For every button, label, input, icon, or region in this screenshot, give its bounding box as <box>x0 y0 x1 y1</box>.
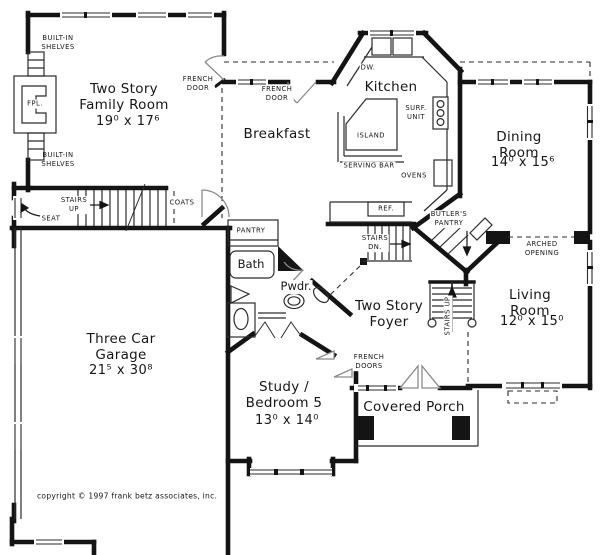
study-dims: 13⁰ x 14⁰ <box>255 413 319 429</box>
ref-counter <box>330 202 412 222</box>
cased-opening-break <box>255 322 301 338</box>
garage-dims: 21⁵ x 30⁸ <box>89 363 153 379</box>
arched-opening-label: ARCHED OPENING <box>513 240 571 258</box>
stairs-up-foyer-label: STAIRS UP <box>444 296 453 337</box>
floor-plan: BUILT-IN SHELVES FPL. BUILT-IN SHELVES T… <box>0 0 600 555</box>
living-room-dims: 12⁰ x 15⁰ <box>500 314 564 330</box>
stairs-up-hall-treads <box>78 184 158 231</box>
ovens-icon <box>434 160 452 186</box>
island-counter <box>346 99 397 150</box>
porch-column <box>356 416 374 440</box>
front-door-icon <box>400 366 440 388</box>
surface-unit-label: SURF. UNIT <box>404 104 427 122</box>
dishwasher-label: DW. <box>360 64 377 73</box>
french-doors-study-icon <box>316 351 352 377</box>
family-room-label: Two Story Family Room <box>79 81 168 113</box>
serving-bar-label: SERVING BAR <box>342 162 395 171</box>
french-doors-study-label: FRENCH DOORS <box>353 353 386 371</box>
kitchen-sink-icon <box>393 38 412 55</box>
coats-label: COATS <box>169 199 196 208</box>
study-label: Study / Bedroom 5 <box>246 379 323 411</box>
copyright-text: copyright © 1997 frank betz associates, … <box>37 491 217 500</box>
pantry-label: PANTRY <box>236 227 267 236</box>
foyer-label: Two Story Foyer <box>355 298 423 330</box>
stairs-dn-label: STAIRS DN. <box>361 234 389 252</box>
toilet-icon <box>284 294 304 309</box>
seat-label: SEAT <box>41 215 62 224</box>
refrigerator-label: REF. <box>377 205 395 214</box>
bath-sink-icon <box>231 286 249 303</box>
stairs-up-hall-label: STAIRS UP <box>60 196 88 214</box>
toilet-icon <box>234 309 248 330</box>
french-door-family-label: FRENCH DOOR <box>182 75 215 93</box>
porch-column <box>452 416 470 440</box>
butlers-pantry-label: BUTLER'S PANTRY <box>430 210 468 228</box>
powder-sink-icon <box>311 285 332 306</box>
ovens-label: OVENS <box>400 172 428 181</box>
island-label: ISLAND <box>357 132 385 141</box>
fireplace-label: FPL. <box>26 100 44 109</box>
breakfast-label: Breakfast <box>244 126 311 142</box>
powder-label: Pwdr. <box>280 280 313 294</box>
cooktop-icon <box>433 97 448 129</box>
dining-room-dims: 14⁰ x 15⁶ <box>491 155 555 171</box>
built-in-shelves-top-label: BUILT-IN SHELVES <box>41 34 74 52</box>
kitchen-label: Kitchen <box>365 79 418 95</box>
kitchen-sink-icon <box>372 38 391 55</box>
french-door-breakfast-label: FRENCH DOOR <box>261 85 294 103</box>
living-bay-line <box>508 391 557 403</box>
built-in-shelves-bottom-label: BUILT-IN SHELVES <box>41 151 74 169</box>
covered-porch-label: Covered Porch <box>363 399 464 415</box>
garage-label: Three Car Garage <box>87 331 156 363</box>
family-room-dims: 19⁰ x 17⁶ <box>96 114 160 130</box>
bath-label: Bath <box>237 258 266 272</box>
